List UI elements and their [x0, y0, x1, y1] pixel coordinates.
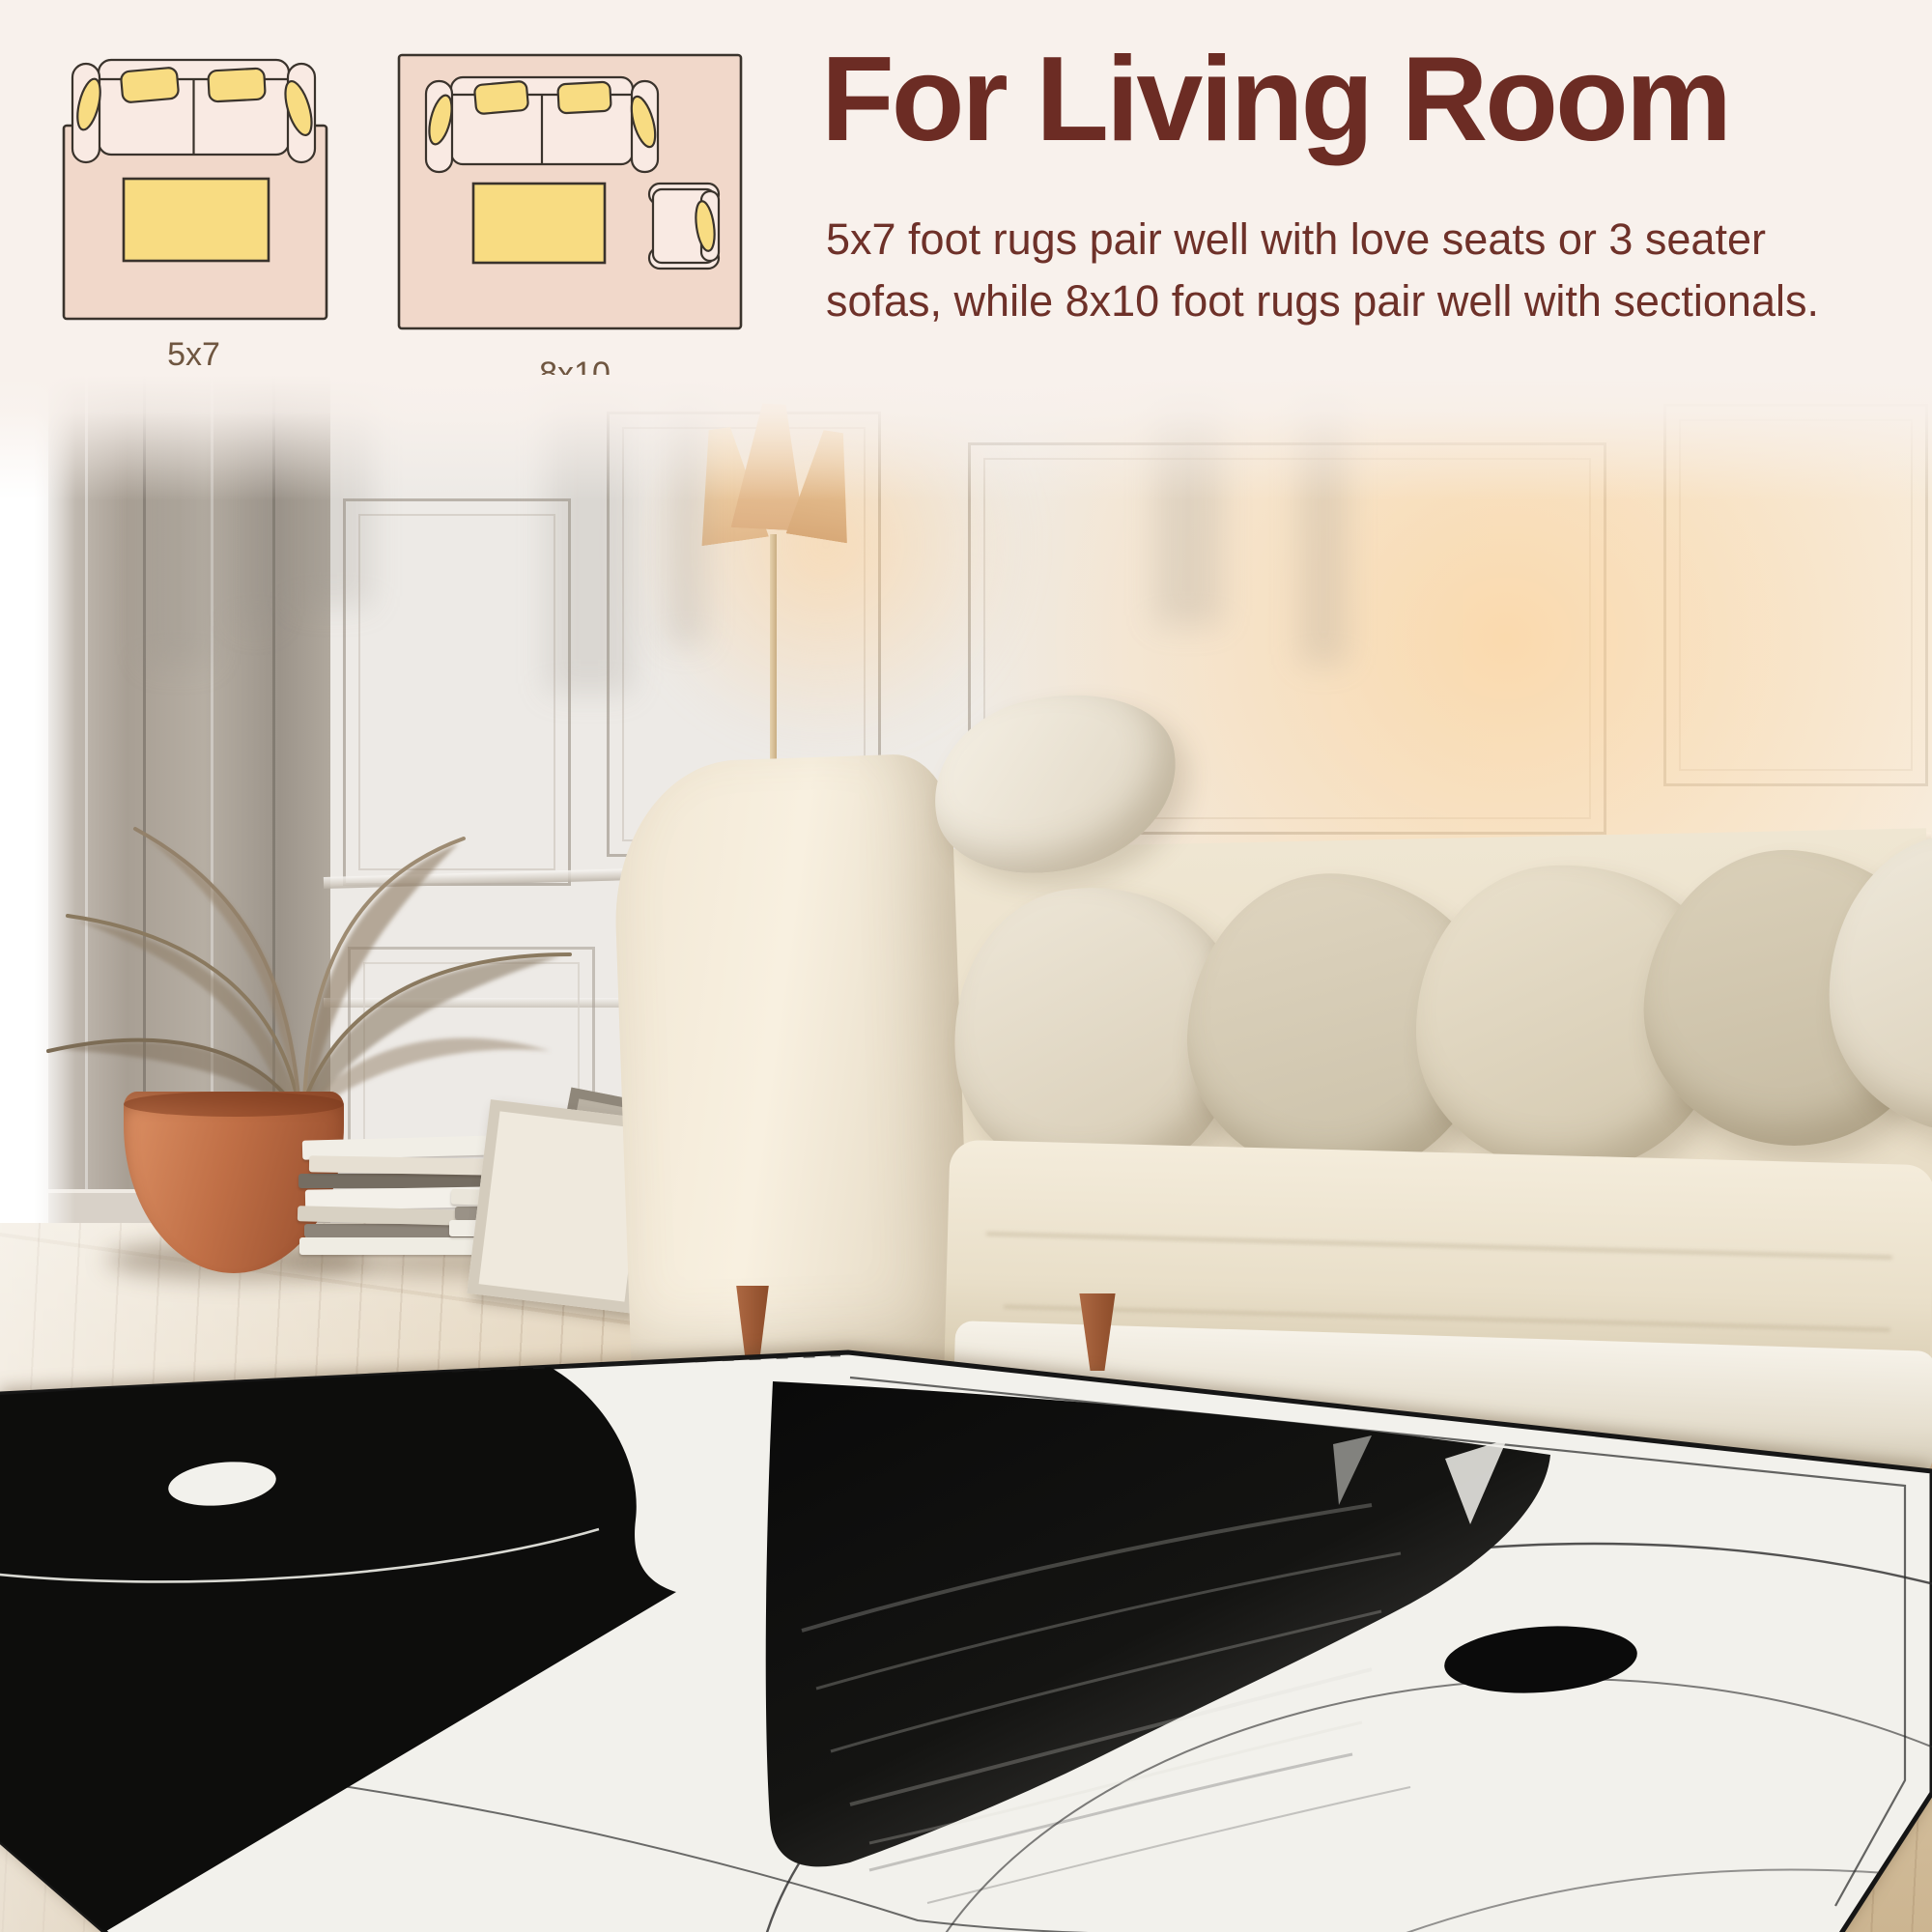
- page-description: 5x7 foot rugs pair well with love seats …: [826, 209, 1918, 332]
- rug-8x10-diagram: [396, 27, 753, 346]
- book: [309, 1155, 493, 1175]
- three-seater-sofa-topview: [425, 77, 660, 172]
- area-rug: [0, 1341, 1932, 1932]
- coffee-table: [473, 184, 605, 263]
- pot-rim: [124, 1092, 344, 1117]
- loveseat-sofa-topview: [72, 60, 317, 162]
- dried-palm-plant: [10, 684, 628, 1119]
- living-room-photo: [0, 375, 1932, 1932]
- product-infographic: 5x7: [0, 0, 1932, 1932]
- rug-5x7-diagram: [56, 29, 331, 333]
- palm-fronds: [58, 837, 560, 1112]
- armchair-topview: [649, 184, 719, 269]
- page-title: For Living Room: [821, 37, 1903, 162]
- coffee-table: [124, 179, 269, 261]
- description-line-1: 5x7 foot rugs pair well with love seats …: [826, 209, 1918, 270]
- sofa-armrest: [611, 753, 972, 1392]
- photo-top-blur: [0, 375, 1932, 500]
- diagram-label-5x7: 5x7: [56, 336, 331, 374]
- cushion-crease: [986, 1233, 1892, 1260]
- info-header: 5x7: [0, 0, 1932, 386]
- description-line-2: sofas, while 8x10 foot rugs pair well wi…: [826, 270, 1918, 332]
